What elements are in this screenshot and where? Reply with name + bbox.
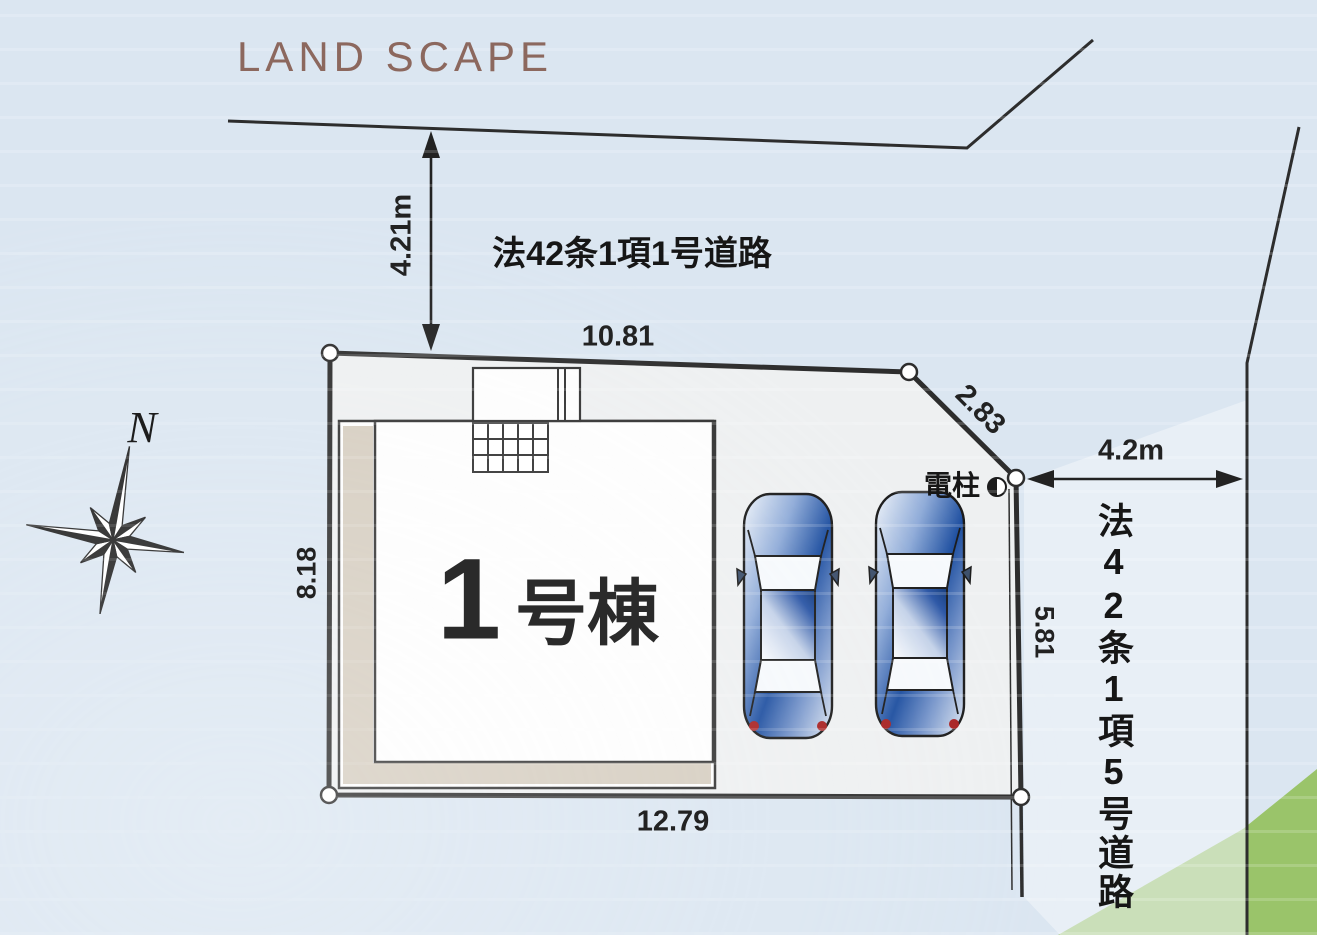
dimension-arrow-top-road-width [422, 131, 440, 351]
building-number: 1 [437, 543, 501, 658]
side-road-label: 法42条1項5号道路 [1095, 502, 1131, 912]
dimension-north: 10.81 [582, 323, 655, 352]
entrance-tile-grid [473, 423, 548, 472]
building-label: 1 号棟 [437, 543, 659, 658]
car-icon [869, 492, 971, 736]
dimension-east: 5.81 [1031, 606, 1058, 659]
veranda-strip-south [343, 763, 711, 784]
dimension-west: 8.18 [294, 547, 321, 600]
site-plan-page: LAND SCAPE 法42条1項1号道路 4.21m 10.81 2.83 電… [0, 0, 1317, 935]
entrance-porch [473, 368, 580, 421]
veranda-strip-west [343, 426, 373, 784]
car-icon [737, 494, 839, 738]
building-number-suffix: 号棟 [515, 579, 659, 651]
side-road-west-boundary-extension [1021, 799, 1022, 897]
compass-north-label: N [127, 406, 156, 450]
dimension-south: 12.79 [637, 808, 710, 837]
top-road-label: 法42条1項1号道路 [492, 237, 772, 271]
side-road-width-label: 4.2m [1098, 437, 1164, 466]
plan-title: LAND SCAPE [237, 36, 553, 78]
compass-rose-icon [13, 431, 200, 626]
utility-pole-label: 電柱 [924, 472, 980, 500]
top-road-width-label: 4.21m [388, 194, 417, 276]
utility-pole-icon [988, 478, 1006, 496]
